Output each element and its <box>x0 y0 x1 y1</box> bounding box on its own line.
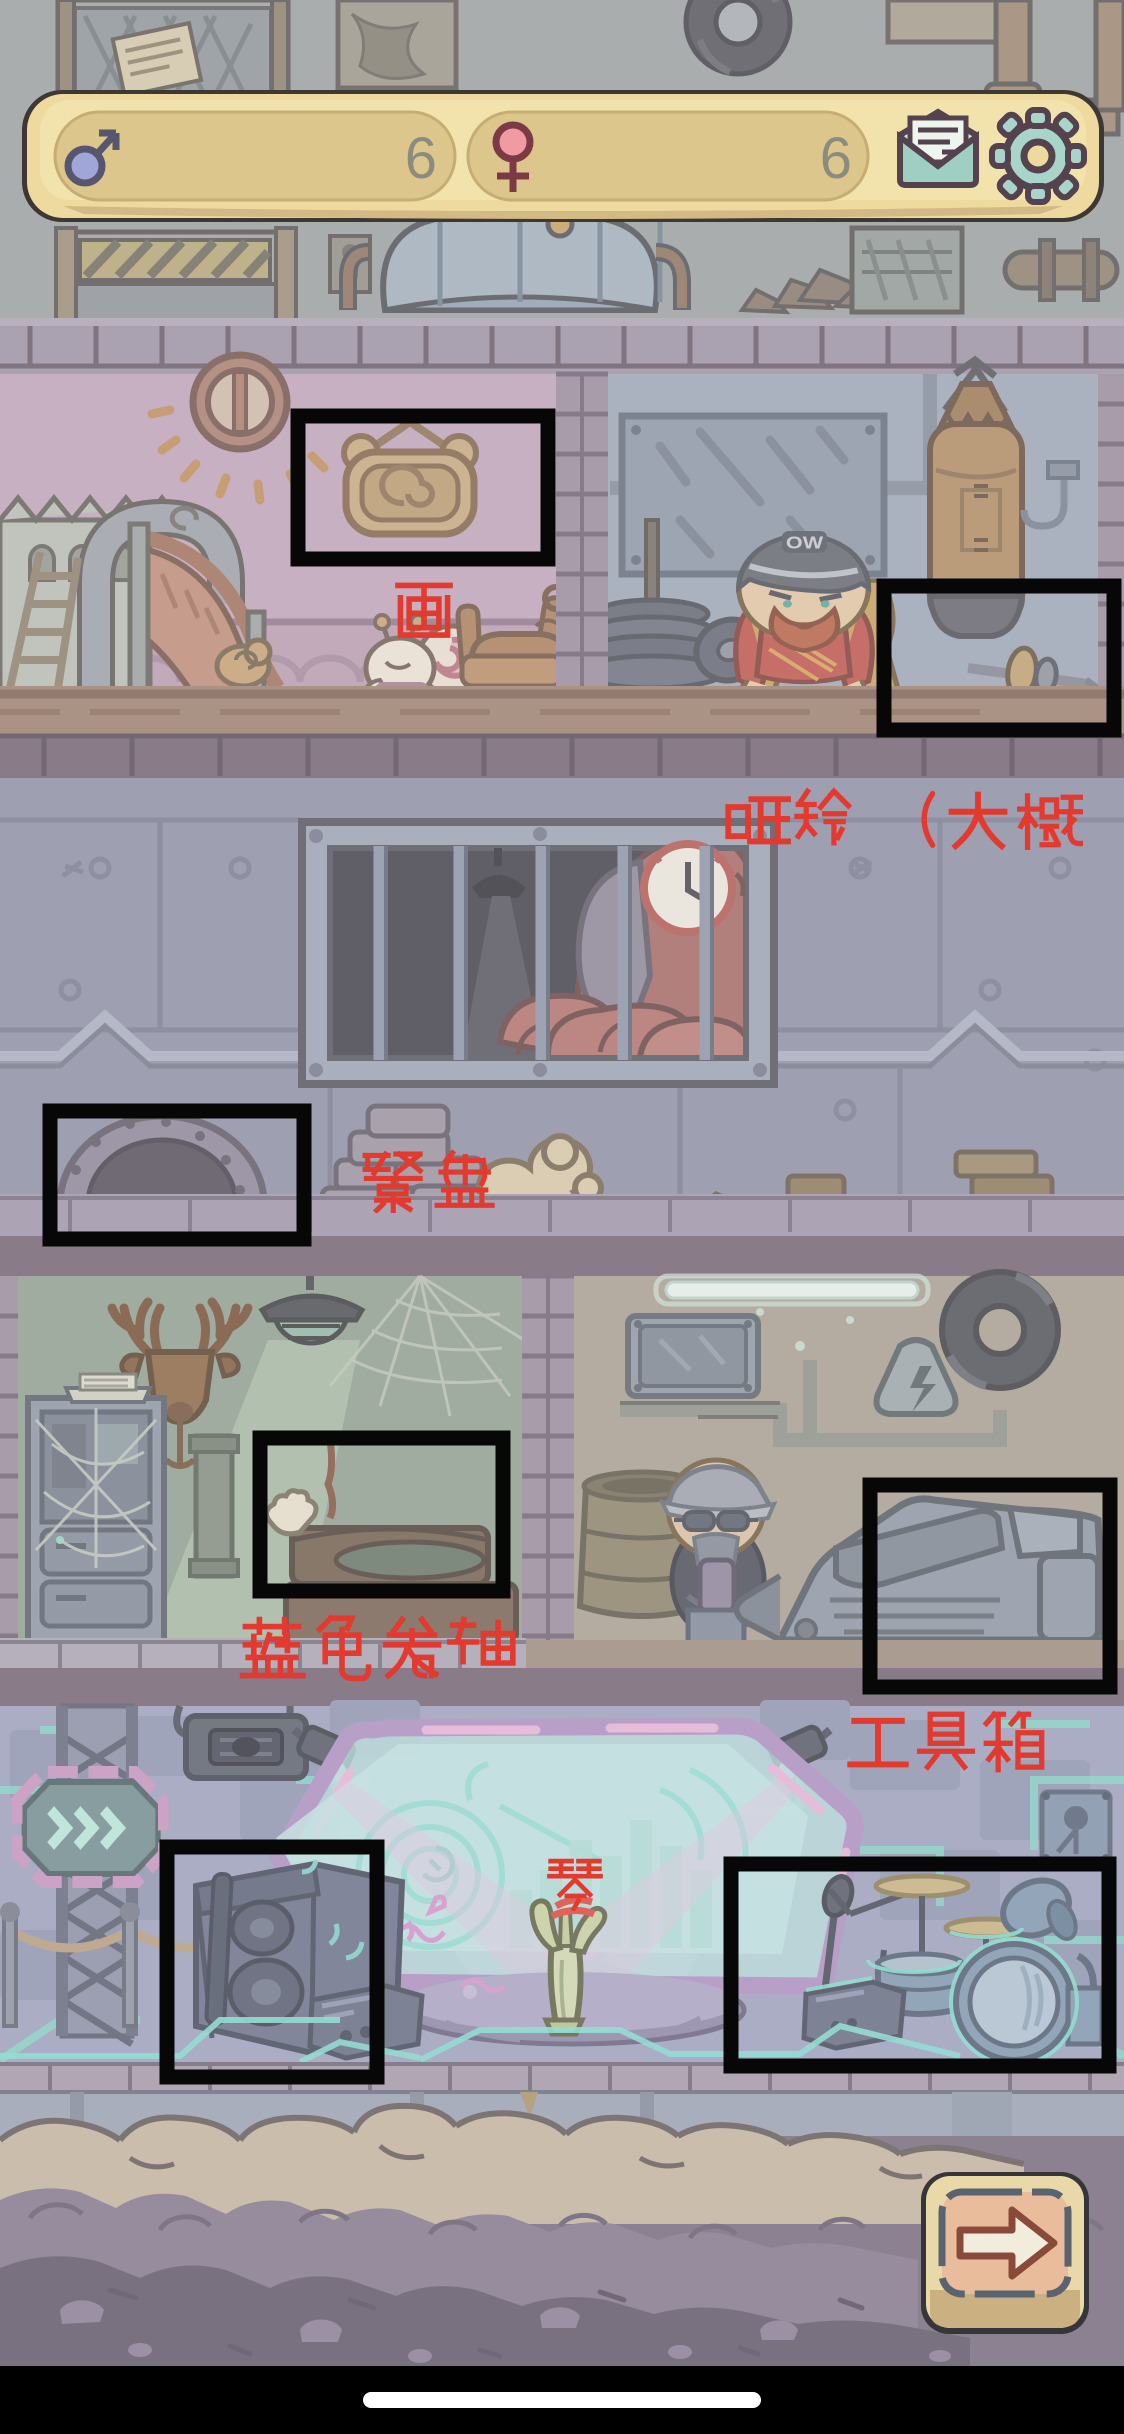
svg-text:6: 6 <box>405 126 437 191</box>
svg-text:6: 6 <box>820 126 852 191</box>
